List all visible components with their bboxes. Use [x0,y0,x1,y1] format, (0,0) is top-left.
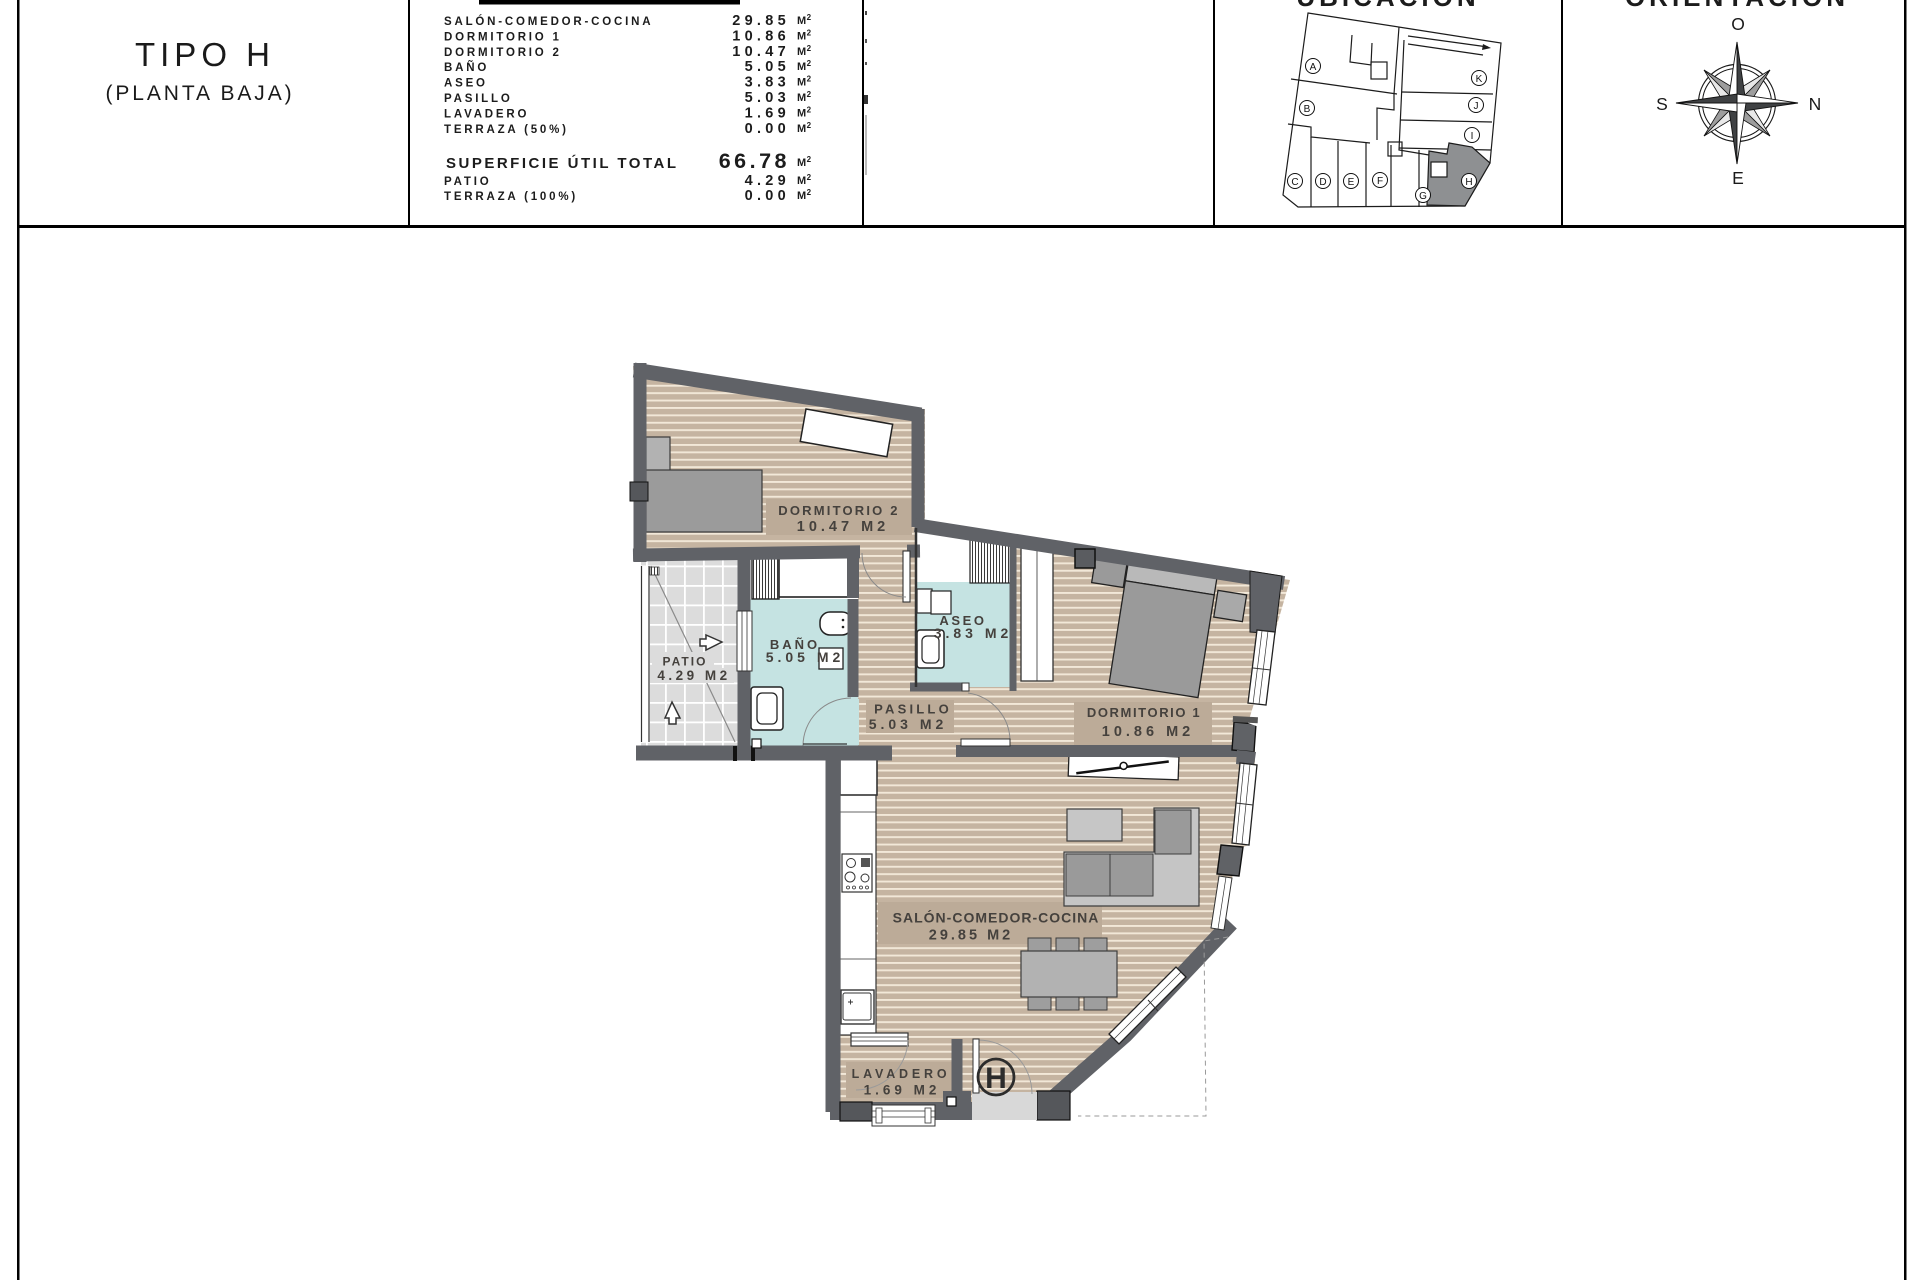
svg-text:C: C [1291,177,1298,188]
svg-text:TERRAZA (50%): TERRAZA (50%) [444,124,569,136]
svg-text:SUPERFICIE ÚTIL TOTAL: SUPERFICIE ÚTIL TOTAL [446,154,679,172]
svg-text:PATIO: PATIO [663,655,708,669]
svg-text:5.03: 5.03 [745,90,790,106]
svg-text:DORMITORIO 2: DORMITORIO 2 [444,47,562,59]
svg-text:B: B [1304,104,1311,115]
svg-text:10.86: 10.86 [732,29,790,45]
svg-text:10.47: 10.47 [732,44,790,60]
svg-text:1.69 M2: 1.69 M2 [864,1083,941,1098]
svg-text:O: O [1731,14,1745,34]
svg-text:UBICACIÓN: UBICACIÓN [1296,0,1479,12]
svg-text:H: H [1465,177,1472,188]
svg-text:H: H [985,1062,1007,1095]
svg-text:66.78: 66.78 [719,149,790,173]
svg-text:10.47 M2: 10.47 M2 [797,519,889,535]
svg-text:DORMITORIO 1: DORMITORIO 1 [1087,705,1201,720]
svg-text:I: I [1471,131,1474,142]
svg-text:PASILLO: PASILLO [444,93,513,105]
svg-text:ORIENTACIÓN: ORIENTACIÓN [1625,0,1849,12]
svg-text:D: D [1319,177,1326,188]
svg-text:0.00: 0.00 [745,188,790,204]
svg-text:TERRAZA (100%): TERRAZA (100%) [444,191,578,203]
svg-text:4.29 M2: 4.29 M2 [657,668,730,683]
svg-text:5.03 M2: 5.03 M2 [869,716,948,732]
svg-text:29.85 M2: 29.85 M2 [929,928,1013,944]
svg-text:S: S [1656,94,1668,114]
svg-text:N: N [1809,94,1822,114]
svg-text:G: G [1419,191,1427,202]
svg-text:E: E [1732,168,1744,188]
svg-text:A: A [1310,62,1317,73]
svg-text:K: K [1476,74,1483,85]
svg-text:PATIO: PATIO [444,176,491,188]
svg-text:LAVADERO: LAVADERO [852,1067,951,1081]
svg-text:0.00: 0.00 [745,121,790,137]
svg-text:LAVADERO: LAVADERO [444,109,529,121]
svg-text:ASEO: ASEO [444,78,488,90]
svg-text:1.69: 1.69 [745,106,790,122]
svg-text:29.85: 29.85 [732,13,790,29]
svg-text:SALÓN-COMEDOR-COCINA: SALÓN-COMEDOR-COCINA [893,909,1100,926]
svg-text:3.83: 3.83 [745,75,790,91]
svg-text:5.05 M2: 5.05 M2 [766,649,845,665]
svg-text:4.29: 4.29 [745,173,790,189]
svg-text:5.05: 5.05 [745,59,790,75]
svg-text:TIPO H: TIPO H [135,36,275,73]
svg-text:BAÑO: BAÑO [444,61,489,74]
svg-text:DORMITORIO 2: DORMITORIO 2 [778,503,900,518]
svg-text:J: J [1474,101,1479,112]
svg-text:DORMITORIO 1: DORMITORIO 1 [444,32,562,44]
svg-text:SALÓN-COMEDOR-COCINA: SALÓN-COMEDOR-COCINA [444,15,653,28]
svg-text:PASILLO: PASILLO [874,702,952,717]
svg-text:(PLANTA BAJA): (PLANTA BAJA) [105,82,294,105]
svg-text:E: E [1348,177,1355,188]
svg-text:3.83 M2: 3.83 M2 [934,625,1013,641]
svg-text:F: F [1377,176,1383,187]
svg-text:10.86 M2: 10.86 M2 [1102,724,1194,740]
